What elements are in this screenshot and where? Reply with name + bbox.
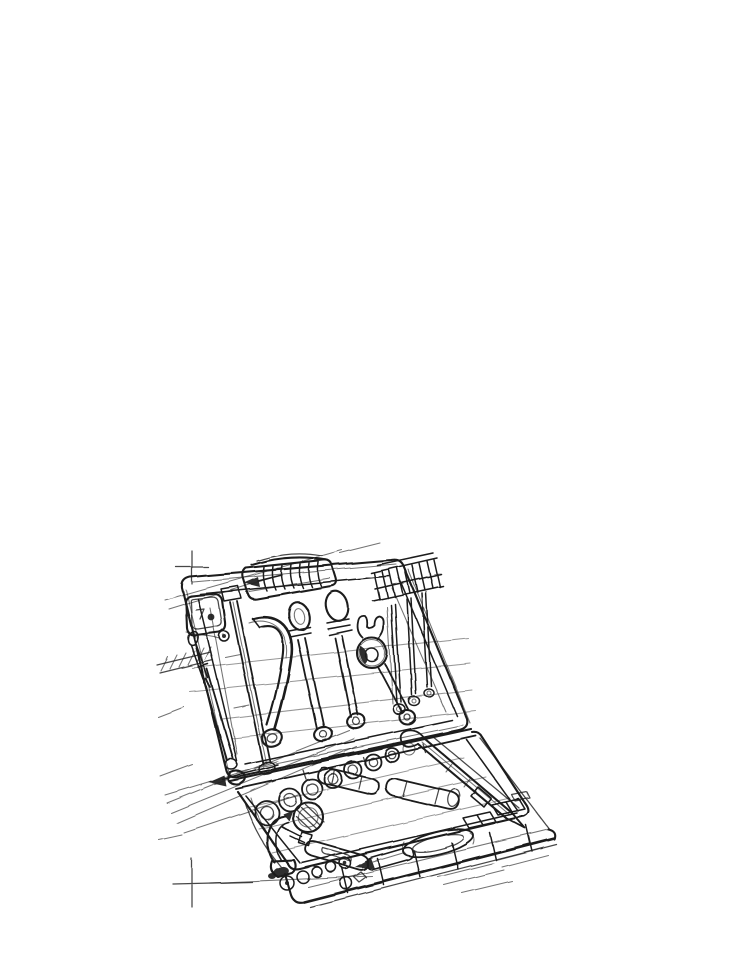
driver-cylinders (318, 768, 462, 810)
lid-cross-guides (190, 638, 476, 738)
screwdriver-pair (286, 589, 367, 743)
left-tray-molding (245, 802, 281, 867)
chisel-bit (355, 848, 413, 870)
toolbox-sketch (40, 16, 732, 957)
toolbox-lid (157, 553, 476, 777)
sketch-canvas (40, 16, 732, 957)
tape-measure-stud (208, 614, 215, 621)
edge-ticks (158, 707, 192, 840)
diagonal-guides-left (165, 730, 356, 833)
knurled-knob (293, 802, 324, 832)
bits-and-balls (280, 858, 366, 891)
crosshair-top-left (176, 551, 208, 584)
lid-shell (182, 560, 470, 778)
toolbox-base (238, 730, 556, 907)
hinge-arrow-icon (208, 775, 226, 786)
